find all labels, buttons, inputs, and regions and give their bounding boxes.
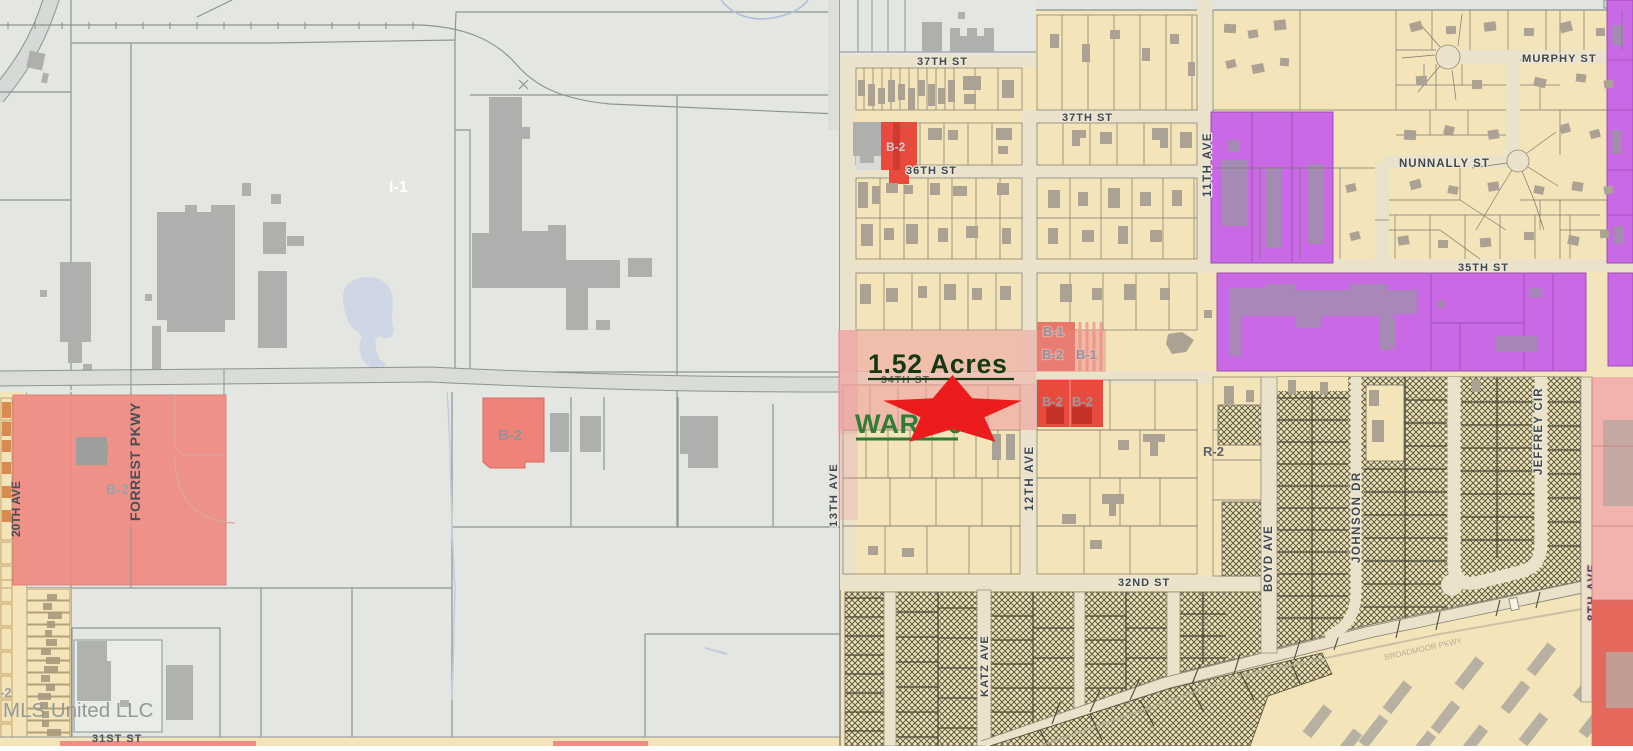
svg-text:37TH ST: 37TH ST: [1062, 112, 1113, 124]
svg-text:12TH AVE: 12TH AVE: [1024, 445, 1036, 511]
svg-text:36TH ST: 36TH ST: [906, 165, 957, 177]
svg-text:B-2: B-2: [498, 427, 522, 444]
svg-text:B-2: B-2: [1072, 394, 1093, 409]
svg-text:JOHNSON DR: JOHNSON DR: [1351, 471, 1363, 563]
svg-text:-2: -2: [0, 685, 12, 700]
svg-text:B-2: B-2: [1042, 394, 1063, 409]
svg-text:B-2: B-2: [1042, 347, 1063, 362]
svg-text:KATZ AVE: KATZ AVE: [979, 635, 991, 697]
svg-text:37TH ST: 37TH ST: [917, 56, 968, 68]
svg-text:13TH AVE: 13TH AVE: [828, 463, 840, 527]
svg-text:B-2: B-2: [886, 140, 906, 154]
svg-text:32ND ST: 32ND ST: [1118, 577, 1170, 589]
svg-text:BOYD AVE: BOYD AVE: [1263, 525, 1275, 592]
svg-text:31ST ST: 31ST ST: [92, 733, 142, 745]
svg-text:B-1: B-1: [1076, 347, 1097, 362]
svg-text:MURPHY ST: MURPHY ST: [1522, 53, 1597, 65]
svg-text:I-1: I-1: [389, 179, 408, 196]
svg-text:FORREST PKWY: FORREST PKWY: [127, 402, 143, 521]
svg-text:NUNNALLY ST: NUNNALLY ST: [1399, 158, 1490, 170]
svg-text:R-2: R-2: [1203, 444, 1224, 459]
svg-text:JEFFREY CIR: JEFFREY CIR: [1533, 387, 1545, 475]
svg-text:11TH AVE: 11TH AVE: [1202, 132, 1214, 197]
svg-text:B-2: B-2: [106, 481, 129, 497]
svg-text:B-1: B-1: [1043, 324, 1064, 339]
svg-text:MLS United LLC: MLS United LLC: [3, 699, 154, 722]
svg-text:35TH ST: 35TH ST: [1458, 262, 1509, 274]
svg-text:1.52 Acres: 1.52 Acres: [868, 349, 1008, 379]
svg-text:20TH AVE: 20TH AVE: [9, 481, 23, 537]
